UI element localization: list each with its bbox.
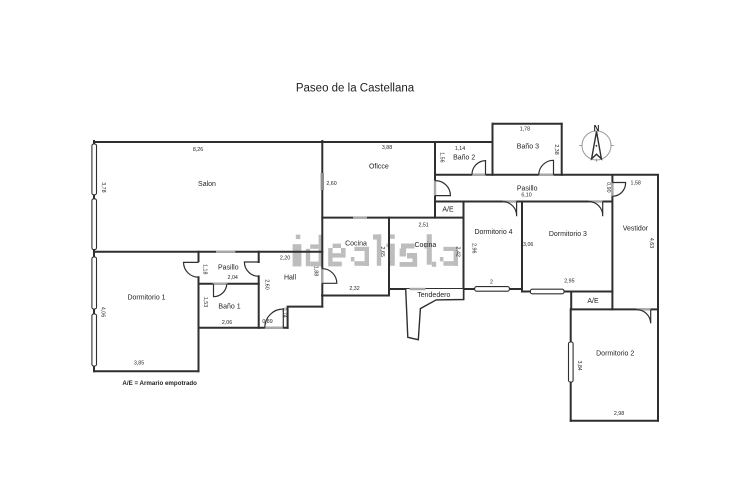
svg-text:3,06: 3,06 [523, 242, 533, 248]
svg-text:2,32: 2,32 [349, 286, 359, 292]
svg-text:Cocina: Cocina [415, 242, 437, 249]
svg-text:0,74: 0,74 [281, 307, 287, 317]
svg-text:Baño 2: Baño 2 [453, 155, 475, 162]
svg-text:Pasillo: Pasillo [218, 264, 239, 271]
svg-text:2,51: 2,51 [418, 223, 428, 229]
svg-text:4,06: 4,06 [100, 307, 106, 317]
svg-text:Dormitorio 2: Dormitorio 2 [596, 351, 634, 358]
svg-text:A/E: A/E [587, 298, 599, 305]
svg-text:3,78: 3,78 [100, 182, 106, 192]
svg-text:2,06: 2,06 [222, 320, 232, 326]
svg-text:0,89: 0,89 [262, 319, 272, 325]
svg-text:3,88: 3,88 [382, 145, 392, 151]
svg-text:Salon: Salon [198, 181, 216, 188]
svg-text:2,60: 2,60 [326, 181, 336, 187]
svg-text:0,90: 0,90 [605, 182, 611, 192]
svg-text:Paseo de la Castellana: Paseo de la Castellana [296, 83, 415, 95]
svg-text:4,63: 4,63 [648, 238, 654, 248]
svg-text:Dormitorio 3: Dormitorio 3 [549, 231, 587, 238]
svg-text:1,56: 1,56 [439, 152, 445, 162]
svg-text:8,26: 8,26 [193, 147, 203, 153]
svg-text:1,14: 1,14 [455, 146, 465, 152]
svg-text:Vestidor: Vestidor [623, 226, 649, 233]
svg-text:A/E: A/E [442, 207, 454, 214]
svg-text:2,60: 2,60 [264, 279, 270, 289]
svg-text:Baño 1: Baño 1 [218, 304, 240, 311]
svg-text:Dormitorio 4: Dormitorio 4 [474, 229, 512, 236]
svg-text:Baño 3: Baño 3 [517, 144, 539, 151]
svg-text:Cocina: Cocina [345, 240, 367, 247]
svg-text:1,58: 1,58 [631, 181, 641, 187]
svg-text:1,53: 1,53 [202, 297, 208, 307]
svg-text:2,65: 2,65 [379, 247, 385, 257]
svg-text:2,95: 2,95 [564, 278, 574, 284]
svg-text:6,10: 6,10 [521, 192, 531, 198]
svg-text:Hall: Hall [284, 274, 297, 281]
svg-text:1,18: 1,18 [202, 264, 208, 274]
svg-text:3,85: 3,85 [134, 360, 144, 366]
svg-text:1,88: 1,88 [313, 266, 319, 276]
svg-text:2,04: 2,04 [228, 275, 238, 281]
svg-text:2,38: 2,38 [553, 144, 559, 154]
svg-text:2: 2 [490, 280, 493, 286]
svg-text:3,84: 3,84 [576, 360, 582, 370]
svg-text:Dormitorio 1: Dormitorio 1 [127, 295, 165, 302]
svg-text:2,96: 2,96 [471, 243, 477, 253]
svg-text:1,78: 1,78 [520, 127, 530, 133]
svg-text:2,42: 2,42 [455, 247, 461, 257]
svg-text:Oficce: Oficce [369, 163, 389, 170]
svg-text:Tendedero: Tendedero [417, 292, 450, 299]
svg-text:2,98: 2,98 [614, 411, 624, 417]
svg-text:2,20: 2,20 [280, 256, 290, 262]
svg-text:A/E = Armario empotrado: A/E = Armario empotrado [122, 380, 197, 387]
svg-text:N: N [594, 124, 600, 133]
